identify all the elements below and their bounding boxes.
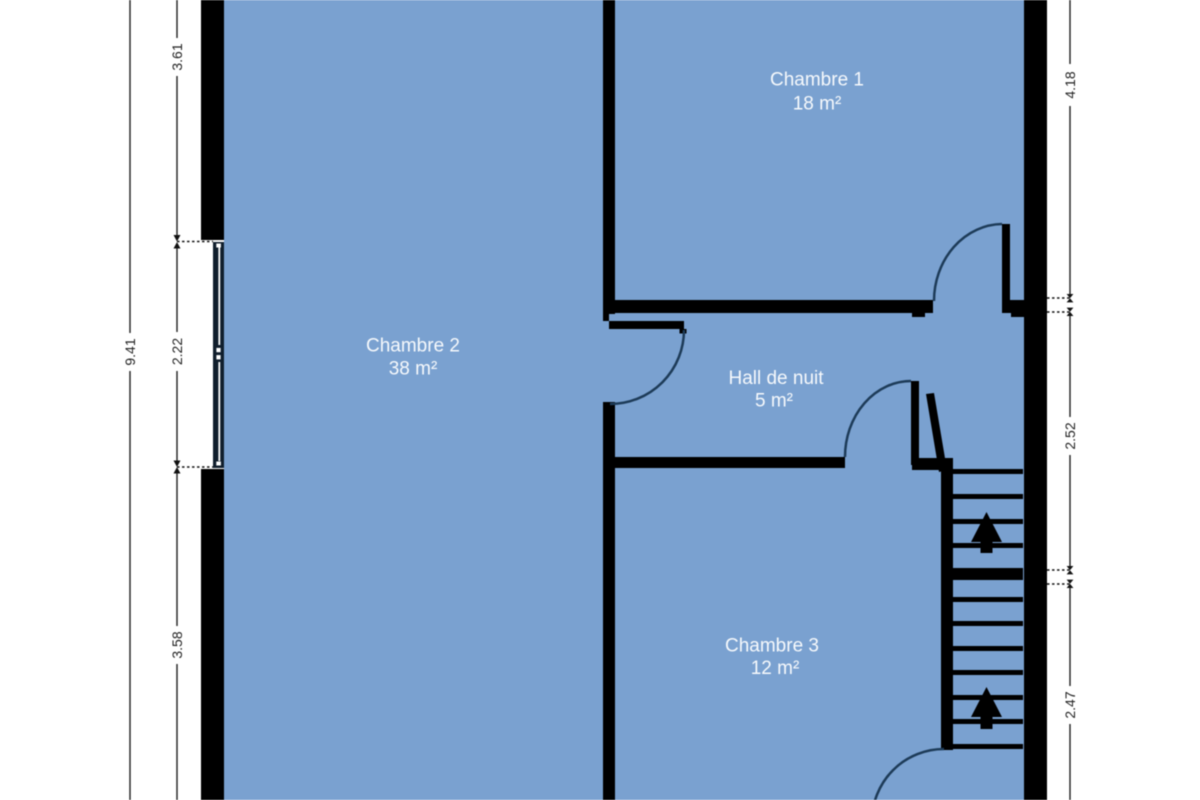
- svg-text:2.52: 2.52: [1062, 422, 1078, 449]
- svg-text:9.41: 9.41: [122, 338, 138, 365]
- svg-text:5 m²: 5 m²: [755, 391, 793, 412]
- svg-text:Chambre 3: Chambre 3: [725, 636, 819, 657]
- svg-text:18 m²: 18 m²: [793, 94, 842, 115]
- svg-text:2.22: 2.22: [169, 338, 185, 365]
- svg-text:Chambre 2: Chambre 2: [366, 336, 460, 357]
- svg-text:3.61: 3.61: [169, 43, 185, 70]
- svg-text:12 m²: 12 m²: [751, 658, 800, 679]
- svg-text:2.47: 2.47: [1062, 691, 1078, 718]
- svg-text:Hall de nuit: Hall de nuit: [728, 368, 824, 389]
- svg-text:3.58: 3.58: [169, 631, 185, 658]
- svg-text:4.18: 4.18: [1062, 71, 1078, 98]
- svg-text:Chambre 1: Chambre 1: [770, 70, 864, 91]
- svg-text:38 m²: 38 m²: [389, 359, 438, 380]
